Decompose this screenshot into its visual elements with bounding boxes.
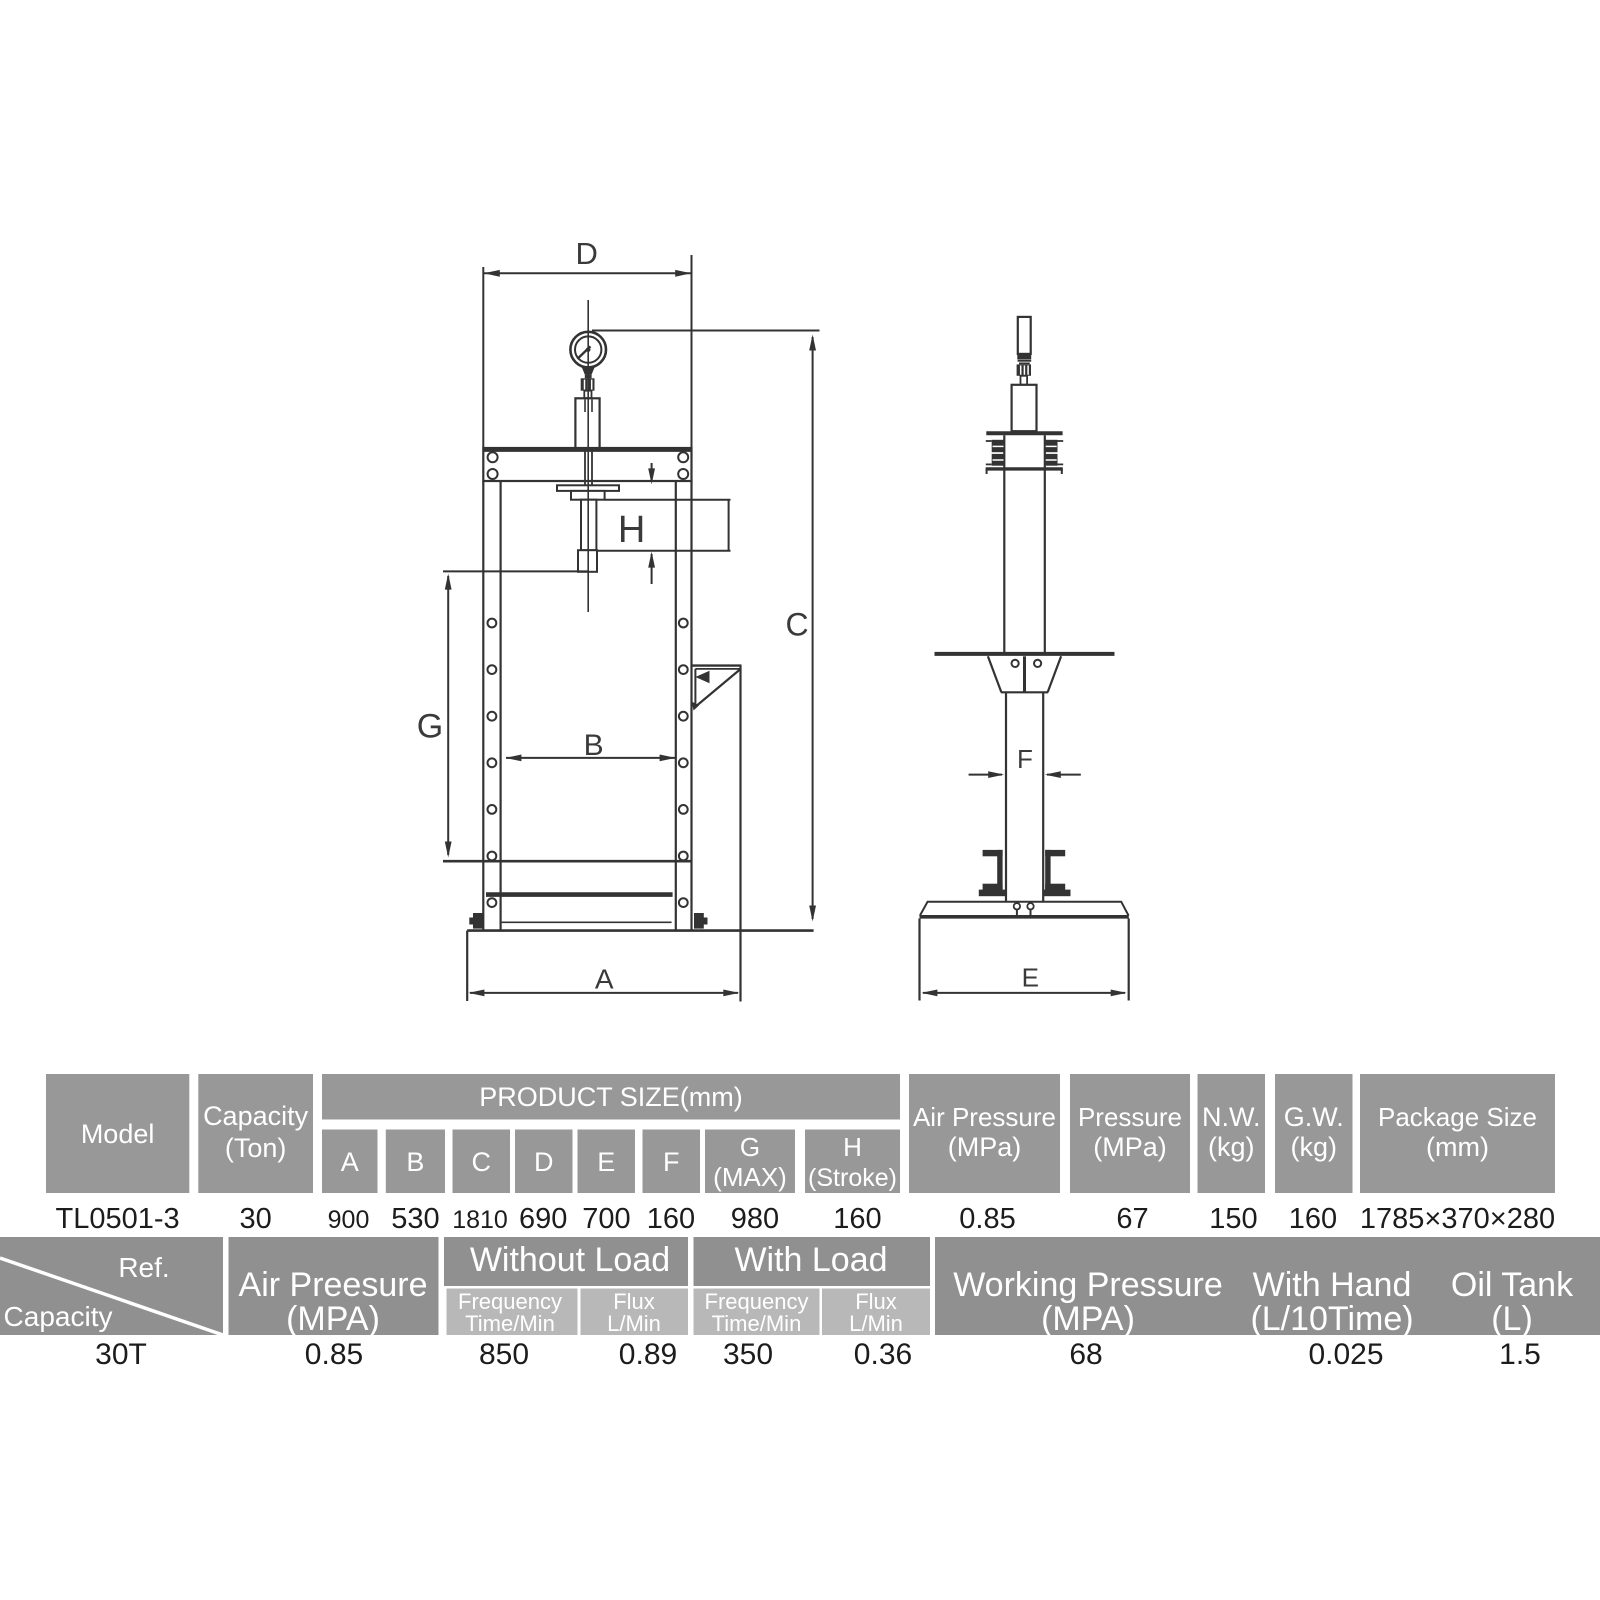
svg-text:1.5: 1.5 xyxy=(1499,1338,1541,1371)
svg-text:690: 690 xyxy=(519,1203,567,1235)
svg-text:Time/Min: Time/Min xyxy=(712,1311,802,1336)
svg-text:C: C xyxy=(472,1147,492,1177)
svg-text:G.W.: G.W. xyxy=(1284,1102,1344,1132)
svg-text:(L/10Time): (L/10Time) xyxy=(1250,1300,1413,1338)
svg-text:(kg): (kg) xyxy=(1291,1132,1338,1162)
svg-text:Working Pressure: Working Pressure xyxy=(953,1266,1223,1304)
svg-text:980: 980 xyxy=(731,1203,779,1235)
svg-text:67: 67 xyxy=(1116,1203,1148,1235)
svg-text:F: F xyxy=(663,1147,680,1177)
svg-text:L/Min: L/Min xyxy=(849,1311,903,1336)
svg-text:With Load: With Load xyxy=(734,1241,887,1279)
svg-text:530: 530 xyxy=(391,1203,439,1235)
svg-text:With Hand: With Hand xyxy=(1253,1266,1412,1304)
svg-text:Oil Tank: Oil Tank xyxy=(1451,1266,1574,1304)
svg-text:B: B xyxy=(406,1147,424,1177)
svg-text:30: 30 xyxy=(239,1203,271,1235)
svg-text:(Stroke): (Stroke) xyxy=(808,1164,897,1192)
svg-text:G: G xyxy=(417,708,443,746)
svg-text:Pressure: Pressure xyxy=(1078,1102,1182,1132)
svg-text:A: A xyxy=(595,964,614,995)
svg-text:D: D xyxy=(534,1147,554,1177)
svg-text:H: H xyxy=(618,509,645,551)
svg-text:350: 350 xyxy=(723,1338,773,1371)
svg-text:160: 160 xyxy=(647,1203,695,1235)
svg-text:E: E xyxy=(597,1147,615,1177)
svg-text:150: 150 xyxy=(1209,1203,1257,1235)
svg-text:Model: Model xyxy=(81,1119,155,1149)
svg-text:(kg): (kg) xyxy=(1208,1132,1255,1162)
svg-text:L/Min: L/Min xyxy=(607,1311,661,1336)
svg-text:30T: 30T xyxy=(95,1338,147,1371)
svg-text:(mm): (mm) xyxy=(1426,1132,1489,1162)
svg-text:1785×370×280: 1785×370×280 xyxy=(1360,1203,1555,1235)
svg-text:Capacity: Capacity xyxy=(4,1301,113,1332)
svg-text:1810: 1810 xyxy=(452,1206,508,1234)
svg-text:(MPA): (MPA) xyxy=(1041,1300,1135,1338)
svg-text:(MPa): (MPa) xyxy=(948,1132,1022,1162)
svg-text:900: 900 xyxy=(328,1206,370,1234)
svg-text:B: B xyxy=(584,729,604,762)
svg-text:Time/Min: Time/Min xyxy=(465,1311,555,1336)
svg-text:Package Size: Package Size xyxy=(1378,1102,1537,1132)
svg-text:0.85: 0.85 xyxy=(305,1338,363,1371)
svg-text:(MPa): (MPa) xyxy=(1093,1132,1167,1162)
svg-text:Capacity: Capacity xyxy=(203,1101,309,1131)
svg-text:160: 160 xyxy=(833,1203,881,1235)
svg-text:(MAX): (MAX) xyxy=(713,1162,787,1192)
svg-text:0.85: 0.85 xyxy=(959,1203,1015,1235)
svg-text:C: C xyxy=(785,607,808,643)
svg-text:Without Load: Without Load xyxy=(470,1241,670,1279)
svg-text:0.36: 0.36 xyxy=(854,1338,912,1371)
svg-text:68: 68 xyxy=(1069,1338,1102,1371)
svg-text:(MPA): (MPA) xyxy=(286,1300,380,1338)
svg-text:0.025: 0.025 xyxy=(1308,1338,1383,1371)
svg-text:F: F xyxy=(1017,744,1033,774)
svg-text:A: A xyxy=(341,1147,359,1177)
svg-text:N.W.: N.W. xyxy=(1202,1102,1261,1132)
svg-text:Air Pressure: Air Pressure xyxy=(913,1102,1056,1132)
svg-text:H: H xyxy=(843,1132,862,1162)
svg-text:G: G xyxy=(740,1132,760,1162)
svg-text:160: 160 xyxy=(1289,1203,1337,1235)
svg-text:850: 850 xyxy=(479,1338,529,1371)
svg-text:(L): (L) xyxy=(1491,1300,1533,1338)
svg-text:TL0501-3: TL0501-3 xyxy=(56,1203,180,1235)
svg-text:(Ton): (Ton) xyxy=(225,1133,287,1163)
svg-text:Ref.: Ref. xyxy=(118,1252,169,1283)
svg-text:PRODUCT SIZE(mm): PRODUCT SIZE(mm) xyxy=(479,1082,743,1112)
svg-text:E: E xyxy=(1022,963,1039,993)
svg-text:0.89: 0.89 xyxy=(619,1338,677,1371)
svg-text:Air Preesure: Air Preesure xyxy=(239,1266,428,1304)
svg-text:700: 700 xyxy=(582,1203,630,1235)
svg-text:D: D xyxy=(576,236,598,271)
